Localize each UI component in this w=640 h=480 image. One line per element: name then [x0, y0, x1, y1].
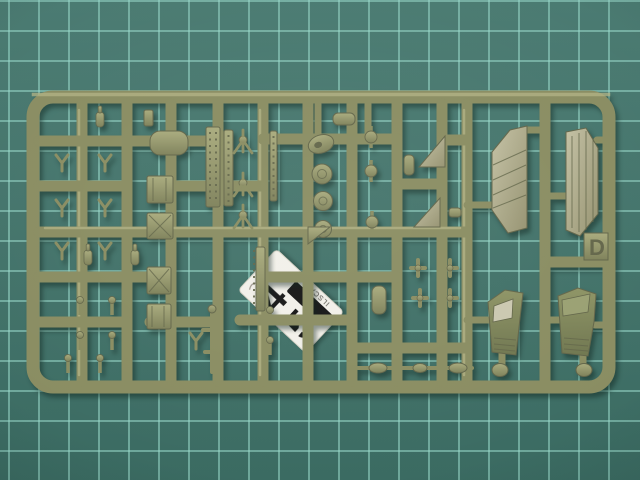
panel-part-left [492, 126, 527, 233]
pin-part [109, 332, 116, 351]
panel-part-right [566, 128, 598, 236]
hatch-part [312, 164, 332, 184]
toothed-strip [206, 127, 220, 207]
axle-rod-part [358, 363, 472, 373]
jerry-can-part [147, 213, 173, 239]
letter-d: D [589, 235, 605, 260]
ball-joint-part [365, 160, 377, 182]
hatch-part [314, 192, 333, 211]
knob-part [492, 364, 508, 377]
tripod-part [234, 130, 252, 153]
wishbone-part [99, 243, 111, 259]
small-block-part [404, 155, 414, 175]
cylinder-part [333, 113, 355, 125]
stowage-box-part [147, 304, 171, 329]
jerry-can-part [147, 267, 171, 294]
pin-part [65, 355, 72, 374]
tripod-part [234, 205, 252, 228]
small-block-part [449, 208, 461, 217]
cylinder-part [372, 286, 386, 314]
wishbone-part [190, 333, 202, 349]
sprue-d: D [33, 94, 609, 387]
photo-scene: 4 5 ILSCA [0, 0, 640, 480]
frame-highlight [33, 94, 609, 95]
cylinder-part [150, 131, 188, 155]
gusset-part [419, 136, 445, 167]
letter-d-tab: D [584, 233, 608, 260]
tick-strip [270, 131, 277, 201]
cross-part [411, 260, 425, 276]
stowage-box-part [147, 176, 173, 203]
knob-part [576, 364, 592, 377]
wishbone-part [56, 155, 68, 171]
toothed-strip-over-label [254, 247, 265, 311]
wishbone-part [99, 155, 111, 171]
wishbone-part [99, 200, 111, 216]
wishbone-part [56, 243, 68, 259]
hull-plate-right [558, 288, 596, 356]
pin-part [97, 355, 104, 374]
pin-part [109, 297, 116, 316]
wishbone-part [56, 200, 68, 216]
cross-part [413, 290, 427, 306]
ladder-strip [224, 130, 233, 206]
bottle-part [96, 106, 104, 127]
gusset-part [414, 198, 440, 227]
hull-plate-left [488, 290, 523, 355]
small-block-part [144, 110, 153, 126]
